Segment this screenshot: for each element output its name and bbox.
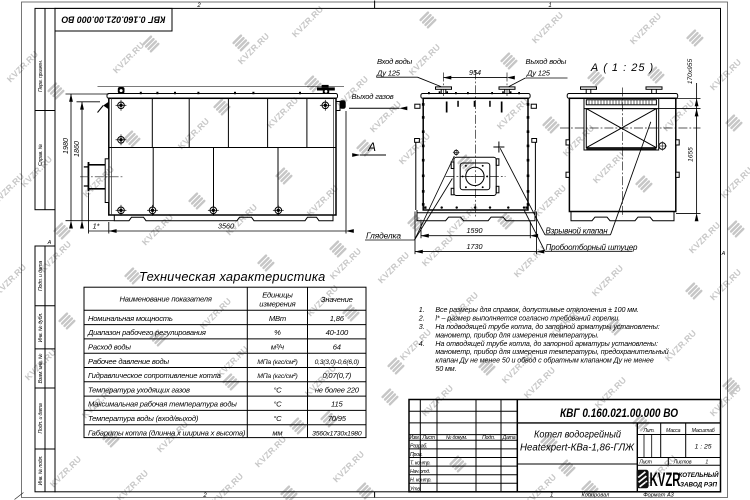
svg-text:KVZR.RU: KVZR.RU (48, 454, 83, 489)
svg-text:KVZR.RU: KVZR.RU (500, 350, 535, 385)
svg-text:KVZR.RU: KVZR.RU (561, 123, 596, 158)
svg-text:KVZR.RU: KVZR.RU (522, 365, 557, 400)
svg-text:KVZR.RU: KVZR.RU (398, 327, 433, 362)
svg-text:KVZR.RU: KVZR.RU (591, 150, 626, 185)
svg-text:KVZR.RU: KVZR.RU (530, 10, 565, 45)
svg-text:KVZR.RU: KVZR.RU (397, 131, 432, 166)
svg-text:KVZR.RU: KVZR.RU (290, 4, 325, 39)
svg-text:KVZR.RU: KVZR.RU (198, 296, 233, 331)
svg-text:KVZR.RU: KVZR.RU (661, 98, 696, 133)
svg-text:KVZR.RU: KVZR.RU (376, 250, 411, 285)
svg-text:KVZR.RU: KVZR.RU (305, 183, 340, 218)
svg-text:KVZR.RU: KVZR.RU (111, 40, 146, 75)
svg-text:KVZR.RU: KVZR.RU (590, 263, 625, 298)
svg-text:KVZR.RU: KVZR.RU (407, 42, 442, 77)
svg-text:KVZR.RU: KVZR.RU (445, 290, 480, 325)
svg-text:KVZR.RU: KVZR.RU (253, 434, 288, 469)
svg-text:KVZR.RU: KVZR.RU (265, 95, 300, 130)
svg-text:KVZR.RU: KVZR.RU (305, 283, 340, 318)
svg-text:KVZR.RU: KVZR.RU (708, 267, 743, 302)
svg-text:KVZR.RU: KVZR.RU (445, 202, 480, 237)
svg-text:KVZR.RU: KVZR.RU (0, 262, 28, 297)
svg-text:KVZR.RU: KVZR.RU (335, 74, 370, 109)
svg-text:KVZR.RU: KVZR.RU (303, 363, 338, 398)
svg-text:KVZR.RU: KVZR.RU (224, 202, 259, 237)
svg-text:KVZR.RU: KVZR.RU (81, 164, 116, 199)
svg-text:KVZR.RU: KVZR.RU (38, 239, 73, 274)
svg-text:KVZR.RU: KVZR.RU (19, 154, 54, 189)
svg-text:KVZR.RU: KVZR.RU (115, 468, 150, 500)
svg-text:KVZR.RU: KVZR.RU (643, 453, 678, 488)
svg-text:KVZR.RU: KVZR.RU (523, 472, 558, 500)
svg-text:KVZR.RU: KVZR.RU (176, 116, 211, 151)
svg-text:KVZR.RU: KVZR.RU (663, 328, 698, 363)
svg-text:KVZR.RU: KVZR.RU (23, 347, 58, 382)
svg-text:KVZR.RU: KVZR.RU (155, 419, 190, 454)
svg-text:KVZR.RU: KVZR.RU (593, 375, 628, 410)
svg-text:KVZR.RU: KVZR.RU (533, 183, 568, 218)
svg-text:KVZR.RU: KVZR.RU (140, 212, 175, 247)
svg-text:KVZR.RU: KVZR.RU (687, 220, 722, 255)
svg-text:KVZR.RU: KVZR.RU (420, 383, 455, 418)
svg-text:KVZR.RU: KVZR.RU (548, 305, 583, 340)
svg-text:KVZR.RU: KVZR.RU (215, 344, 250, 379)
svg-text:KVZR.RU: KVZR.RU (0, 171, 26, 206)
svg-text:KVZR.RU: KVZR.RU (368, 99, 403, 134)
svg-text:KVZR.RU: KVZR.RU (495, 96, 530, 131)
svg-text:KVZR.RU: KVZR.RU (5, 49, 40, 84)
svg-text:KVZR.RU: KVZR.RU (80, 385, 115, 420)
svg-text:KVZR.RU: KVZR.RU (512, 244, 547, 279)
svg-text:KVZR.RU: KVZR.RU (331, 449, 366, 484)
svg-text:KVZR.RU: KVZR.RU (708, 57, 743, 92)
svg-text:KVZR.RU: KVZR.RU (628, 11, 663, 46)
svg-text:KVZR.RU: KVZR.RU (210, 471, 245, 500)
svg-text:KVZR.RU: KVZR.RU (420, 233, 455, 268)
svg-text:KVZR.RU: KVZR.RU (719, 165, 750, 200)
